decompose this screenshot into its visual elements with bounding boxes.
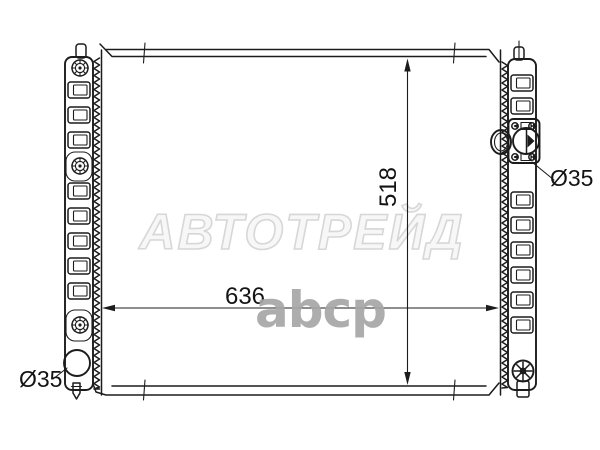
tank-slot <box>68 258 90 274</box>
radiator-diagram-canvas: АВТОТРЕЙД <box>0 0 600 450</box>
tank-slot <box>68 233 90 249</box>
tank-slot <box>511 217 533 233</box>
watermark-logo-text: abcp <box>255 285 386 335</box>
left-tank <box>64 44 93 399</box>
mounting-screw-icon <box>72 317 89 334</box>
dimension-left-pipe: Ø35 <box>19 366 67 392</box>
right-tank <box>491 41 540 397</box>
tank-slot <box>68 107 90 123</box>
arrow-left-icon <box>102 305 115 311</box>
tank-slot <box>68 82 90 98</box>
drain-plug-stem <box>517 381 529 397</box>
tank-slot <box>511 98 533 114</box>
tank-slot <box>511 317 533 333</box>
tank-slot <box>511 267 533 283</box>
tank-slot <box>68 132 90 148</box>
tank-slot <box>511 192 533 208</box>
left-pipe-diameter-label: Ø35 <box>19 366 62 392</box>
radiator-core <box>93 43 508 400</box>
right-tank-body <box>508 59 536 390</box>
core-right-serration <box>502 62 508 388</box>
mounting-tick-marks <box>144 43 456 400</box>
tank-slot <box>68 283 90 299</box>
radiator-line-art: 636 518 Ø35 Ø35 <box>0 0 600 450</box>
arrow-down-icon <box>404 372 410 385</box>
tank-slot <box>68 208 90 224</box>
tank-slot <box>511 75 533 91</box>
tank-slot <box>511 292 533 308</box>
core-height-label: 518 <box>375 167 402 207</box>
core-left-serration <box>94 58 100 389</box>
core-bottom-edge <box>93 383 499 395</box>
drain-plug-icon <box>513 361 534 382</box>
arrow-up-icon <box>404 59 410 72</box>
tank-slot <box>68 183 90 199</box>
left-outlet-pipe <box>64 350 90 376</box>
inlet-pipe-bracket <box>509 119 540 163</box>
dimension-right-pipe: Ø35 <box>532 162 593 191</box>
left-tank-top-pin <box>76 44 86 58</box>
right-pipe-diameter-label: Ø35 <box>550 165 593 191</box>
mounting-screw-icon <box>72 158 89 175</box>
tank-slot <box>511 242 533 258</box>
arrow-right-icon <box>486 305 499 311</box>
left-drain-pin <box>73 383 80 399</box>
mounting-screw-icon <box>72 60 89 77</box>
